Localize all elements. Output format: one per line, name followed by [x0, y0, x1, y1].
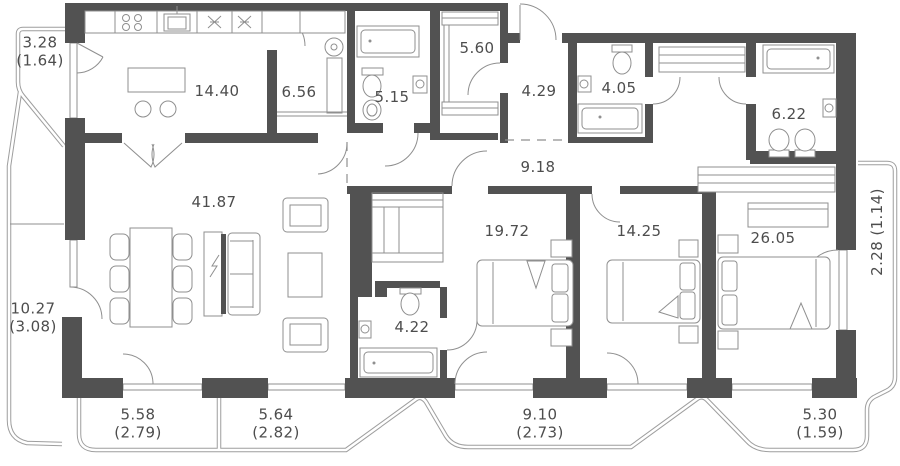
- balcony-label-left: 10.27(3.08): [9, 300, 57, 337]
- bathtub: [360, 348, 437, 377]
- armchair: [283, 198, 328, 232]
- room-label-hallway: 4.29: [522, 82, 557, 100]
- room-label-bedroom-1: 19.72: [485, 222, 530, 240]
- sofa: [228, 233, 260, 315]
- room-label-pantry: 6.56: [282, 83, 317, 101]
- balcony-label-bottom-3: 9.10(2.73): [516, 406, 564, 443]
- room-label-kitchen: 14.40: [195, 82, 240, 100]
- nightstand: [718, 331, 738, 349]
- nightstand: [551, 240, 572, 257]
- dining-table: [130, 228, 172, 327]
- bed: [477, 260, 573, 326]
- living-room-furniture: [110, 198, 328, 352]
- pantry-fixtures: [277, 38, 347, 116]
- toilet: [400, 288, 421, 315]
- room-label-living-room: 41.87: [192, 193, 237, 211]
- nightstand: [679, 240, 698, 257]
- washbasin: [578, 76, 591, 92]
- bed: [607, 260, 700, 323]
- room-label-bathroom-2: 4.05: [602, 79, 637, 97]
- bedroom-2-furniture: [607, 240, 700, 343]
- closet: [372, 193, 443, 262]
- room-label-bathroom-4: 4.22: [395, 318, 430, 336]
- washbasin: [823, 99, 836, 117]
- room-label-corridor: 9.18: [521, 158, 556, 176]
- floor-plan-page: 14.40 6.56 5.15 5.60 4.29 4.05 6.22 9.18…: [0, 0, 900, 466]
- armchair: [283, 318, 328, 352]
- nightstand: [679, 326, 698, 343]
- nightstand: [551, 329, 572, 346]
- room-label-bathroom-1: 5.15: [375, 88, 410, 106]
- coffee-table: [288, 253, 322, 297]
- bed: [718, 257, 830, 329]
- bathroom-3-fixtures: [763, 45, 836, 157]
- tv-unit: [204, 232, 226, 316]
- balcony-label-bottom-2: 5.64(2.82): [252, 406, 300, 443]
- bathtub: [578, 104, 642, 133]
- nightstand: [718, 235, 738, 253]
- bathtub: [357, 26, 419, 57]
- balcony-label-bottom-1: 5.58(2.79): [114, 406, 162, 443]
- toilet: [795, 129, 815, 157]
- balcony-label-right: 2.28 (1.14): [868, 188, 886, 276]
- bathtub: [763, 45, 834, 73]
- bedroom-3-wardrobe: [698, 167, 835, 227]
- room-label-wardrobe: 5.60: [460, 39, 495, 57]
- room-label-bathroom-3: 6.22: [772, 105, 807, 123]
- room-label-bedroom-2: 14.25: [617, 222, 662, 240]
- kitchen-island: [128, 68, 185, 117]
- bedroom-3-furniture: [718, 235, 830, 349]
- balcony-label-bottom-4: 5.30(1.59): [796, 406, 844, 443]
- washbasin: [359, 321, 371, 338]
- wardrobe-shelves: [442, 12, 498, 115]
- washbasin: [413, 76, 427, 93]
- hall-wardrobe: [659, 47, 745, 72]
- balcony-label-top-left: 3.28(1.64): [16, 34, 64, 71]
- room-label-bedroom-3: 26.05: [751, 229, 796, 247]
- toilet: [769, 129, 789, 157]
- toilet: [612, 45, 632, 74]
